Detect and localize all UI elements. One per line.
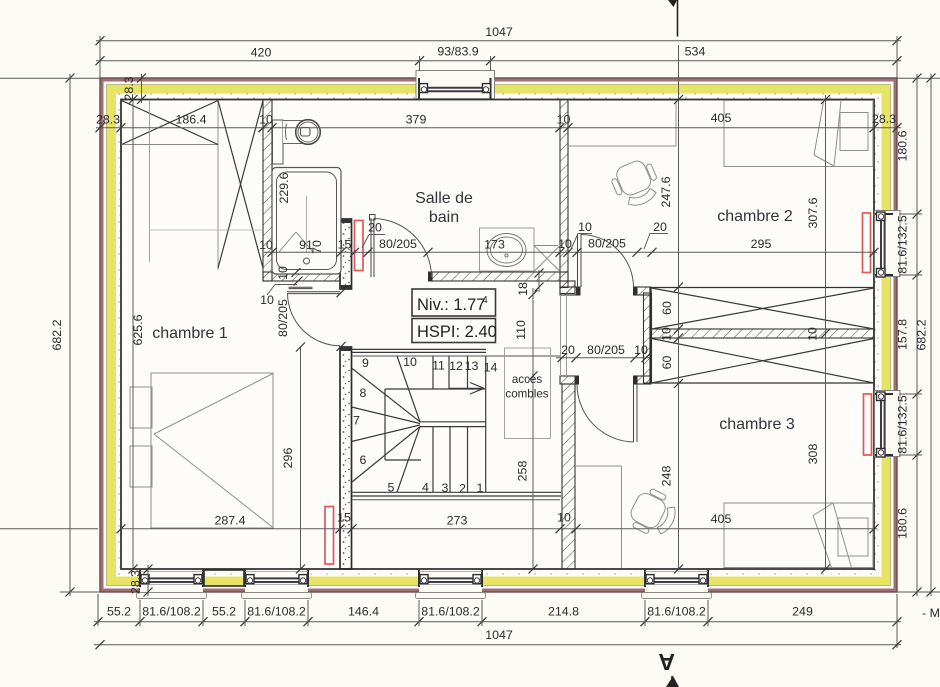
svg-text:15: 15 bbox=[338, 238, 352, 252]
svg-text:55.2: 55.2 bbox=[212, 605, 236, 619]
svg-text:20: 20 bbox=[561, 343, 575, 357]
svg-text:287.4: 287.4 bbox=[214, 514, 245, 528]
svg-text:chambre 1: chambre 1 bbox=[152, 325, 228, 342]
svg-text:15: 15 bbox=[337, 511, 351, 525]
svg-text:28.3: 28.3 bbox=[872, 112, 896, 126]
svg-text:247.6: 247.6 bbox=[659, 176, 673, 207]
svg-text:60: 60 bbox=[660, 356, 674, 370]
svg-text:10: 10 bbox=[557, 511, 571, 525]
svg-text:10: 10 bbox=[578, 220, 592, 234]
svg-text:bain: bain bbox=[429, 209, 459, 226]
svg-text:10: 10 bbox=[660, 327, 674, 341]
svg-text:229.6: 229.6 bbox=[277, 172, 291, 203]
svg-text:80/205: 80/205 bbox=[276, 299, 290, 337]
svg-text:10: 10 bbox=[558, 237, 572, 251]
svg-text:10: 10 bbox=[634, 343, 648, 357]
svg-text:1: 1 bbox=[477, 481, 484, 495]
svg-text:20: 20 bbox=[368, 221, 382, 235]
svg-text:81.6/108.2: 81.6/108.2 bbox=[142, 605, 201, 619]
svg-text:146.4: 146.4 bbox=[348, 605, 379, 619]
svg-text:80/205: 80/205 bbox=[587, 343, 625, 357]
svg-text:405: 405 bbox=[711, 512, 732, 526]
svg-text:682.2: 682.2 bbox=[915, 319, 929, 350]
svg-text:4: 4 bbox=[422, 481, 429, 495]
svg-text:248: 248 bbox=[660, 466, 674, 487]
svg-text:28.3: 28.3 bbox=[129, 570, 143, 594]
svg-text:405: 405 bbox=[711, 111, 732, 125]
svg-text:5: 5 bbox=[388, 481, 395, 495]
svg-text:28.3: 28.3 bbox=[96, 113, 120, 127]
svg-text:186.4: 186.4 bbox=[175, 113, 206, 127]
svg-text:682.2: 682.2 bbox=[50, 319, 64, 350]
svg-text:2: 2 bbox=[459, 482, 466, 496]
svg-text:1047: 1047 bbox=[485, 25, 513, 39]
svg-text:173: 173 bbox=[484, 238, 505, 252]
svg-text:10: 10 bbox=[260, 293, 274, 307]
svg-text:3: 3 bbox=[442, 481, 449, 495]
svg-text:1047: 1047 bbox=[485, 628, 513, 642]
svg-text:accès: accès bbox=[512, 373, 542, 386]
svg-text:13: 13 bbox=[465, 359, 479, 373]
svg-text:60: 60 bbox=[660, 301, 674, 315]
svg-text:combles: combles bbox=[505, 388, 548, 401]
svg-text:534: 534 bbox=[685, 45, 706, 59]
svg-text:296: 296 bbox=[281, 448, 295, 469]
svg-text:HSPI: 2.40: HSPI: 2.40 bbox=[417, 323, 497, 341]
svg-text:A: A bbox=[658, 649, 675, 675]
svg-text:10: 10 bbox=[259, 238, 273, 252]
svg-text:Niv.: 1.77: Niv.: 1.77 bbox=[417, 296, 485, 314]
svg-text:157.8: 157.8 bbox=[896, 319, 910, 350]
svg-text:93/83.9: 93/83.9 bbox=[437, 45, 478, 59]
svg-text:6: 6 bbox=[360, 453, 367, 467]
svg-text:10: 10 bbox=[276, 266, 290, 280]
svg-text:81.6/132.5: 81.6/132.5 bbox=[896, 395, 910, 454]
svg-text:12: 12 bbox=[449, 359, 463, 373]
svg-text:295: 295 bbox=[751, 237, 772, 251]
svg-text:Salle de: Salle de bbox=[415, 190, 473, 207]
svg-text:10: 10 bbox=[557, 113, 571, 127]
svg-text:420: 420 bbox=[251, 46, 272, 60]
svg-text:chambre 3: chambre 3 bbox=[719, 416, 795, 433]
svg-text:55.2: 55.2 bbox=[107, 605, 131, 619]
svg-text:11: 11 bbox=[432, 359, 445, 373]
svg-text:chambre 2: chambre 2 bbox=[717, 208, 793, 225]
svg-text:273: 273 bbox=[447, 514, 468, 528]
svg-text:4: 4 bbox=[482, 294, 488, 306]
svg-text:81.6/132.5: 81.6/132.5 bbox=[896, 215, 910, 274]
svg-text:110: 110 bbox=[514, 320, 528, 340]
svg-text:81.6/108.2: 81.6/108.2 bbox=[421, 605, 480, 619]
svg-text:9: 9 bbox=[362, 356, 369, 370]
svg-text:7: 7 bbox=[353, 414, 360, 428]
svg-text:180.6: 180.6 bbox=[896, 508, 910, 539]
svg-text:28.3: 28.3 bbox=[122, 76, 136, 100]
svg-text:14: 14 bbox=[484, 361, 498, 375]
svg-text:625.6: 625.6 bbox=[131, 314, 145, 345]
svg-text:8: 8 bbox=[360, 386, 367, 400]
svg-text:307.6: 307.6 bbox=[806, 197, 820, 228]
svg-text:81.6/108.2: 81.6/108.2 bbox=[247, 605, 306, 619]
svg-text:- M: - M bbox=[922, 606, 940, 620]
svg-text:81.6/108.2: 81.6/108.2 bbox=[647, 605, 706, 619]
svg-text:80/205: 80/205 bbox=[379, 237, 417, 251]
svg-text:308: 308 bbox=[806, 444, 820, 465]
svg-text:10: 10 bbox=[806, 327, 820, 341]
svg-text:20: 20 bbox=[653, 220, 667, 234]
svg-text:80/205: 80/205 bbox=[588, 237, 626, 251]
svg-text:10: 10 bbox=[403, 355, 417, 369]
svg-text:214.8: 214.8 bbox=[548, 605, 579, 619]
svg-text:379: 379 bbox=[406, 113, 427, 127]
svg-text:180.6: 180.6 bbox=[896, 130, 910, 161]
svg-text:18: 18 bbox=[516, 282, 530, 296]
svg-text:249: 249 bbox=[792, 605, 813, 619]
svg-text:258: 258 bbox=[516, 461, 530, 482]
svg-text:70: 70 bbox=[310, 240, 324, 254]
